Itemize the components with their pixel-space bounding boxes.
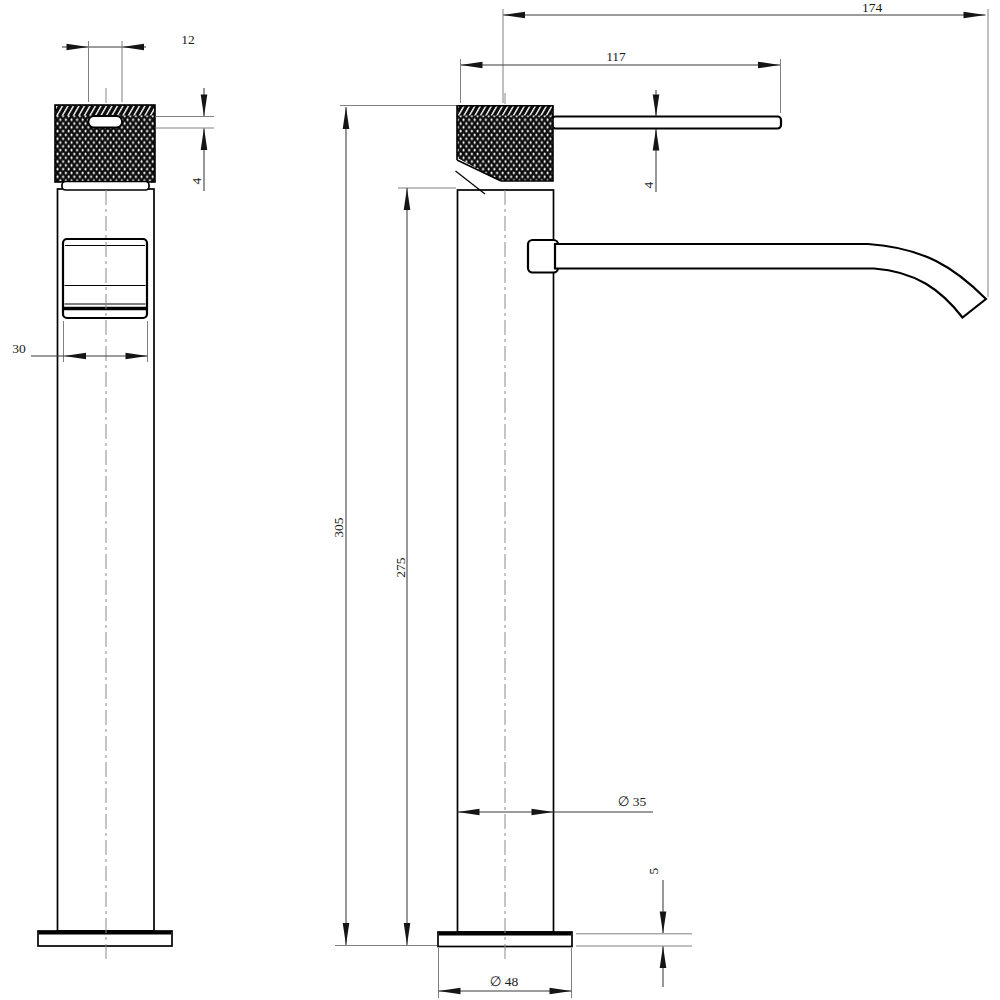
arrowhead: [122, 44, 144, 51]
arrowhead: [653, 129, 660, 151]
dim-label-base-thickness: 5: [647, 864, 661, 878]
drawing-geometry: [0, 0, 1000, 1000]
arrowhead: [550, 988, 572, 995]
lever-handle: [552, 117, 781, 129]
dim-base-thickness: [576, 880, 692, 987]
dim-label-body-diameter: ∅ 35: [602, 794, 662, 809]
arrowhead: [343, 923, 350, 945]
front-neck-ring: [62, 182, 149, 191]
side-view: [438, 93, 986, 959]
dim-label-handle-thickness: 4: [642, 178, 656, 192]
dim-label-body-height: 275: [393, 548, 408, 588]
spout-collar: [528, 240, 558, 273]
arrowhead: [503, 12, 525, 19]
arrowhead: [201, 95, 208, 117]
arrowhead: [439, 988, 461, 995]
dim-label-spout-reach: 174: [850, 0, 894, 15]
dim-label-slot-height: 4: [190, 174, 204, 188]
dim-slot-height: [156, 88, 215, 191]
technical-drawing: 12 4 30 174 117 4 305 275 ∅ 35 5 ∅ 48: [0, 0, 1000, 1000]
spout: [555, 244, 986, 318]
front-spout-block: [63, 239, 147, 318]
dim-label-slot-width: 12: [172, 32, 204, 47]
arrowhead: [660, 946, 667, 968]
arrowhead: [201, 128, 208, 150]
arrowhead: [660, 912, 667, 934]
arrowhead: [461, 62, 483, 69]
dim-overall-height: [335, 106, 456, 946]
dim-slot-width: [62, 41, 146, 102]
side-cap-hatch-band: [458, 106, 552, 116]
arrowhead: [343, 107, 350, 129]
arrowhead: [758, 62, 780, 69]
front-cap-hatch-band: [56, 106, 154, 116]
dim-handle-length: [461, 59, 781, 113]
arrowhead: [653, 95, 660, 117]
dim-label-base-diameter: ∅ 48: [474, 974, 534, 989]
arrowhead: [67, 44, 89, 51]
dim-label-handle-length: 117: [594, 49, 638, 64]
dim-label-overall-height: 305: [331, 508, 346, 548]
arrowhead: [964, 12, 986, 19]
dim-handle-thickness: [653, 90, 660, 192]
arrowhead: [404, 923, 411, 945]
dim-label-spout-block-width: 30: [3, 341, 35, 356]
front-view: [38, 88, 172, 959]
front-cap-slot: [89, 116, 123, 128]
arrowhead: [404, 188, 411, 210]
